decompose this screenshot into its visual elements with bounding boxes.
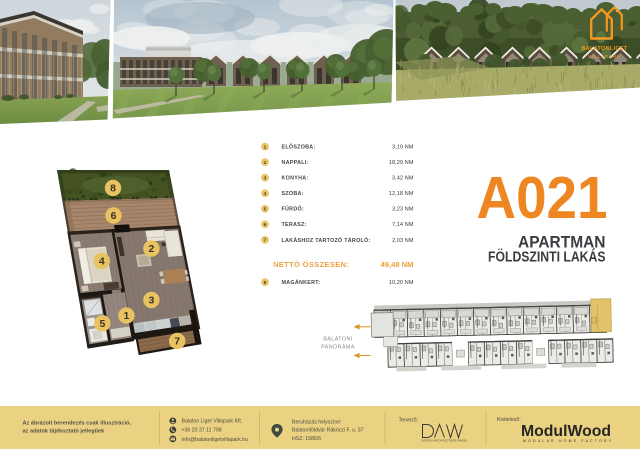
svg-text:az adatok tájékoztató jellegűe: az adatok tájékoztató jellegűek <box>23 428 106 434</box>
svg-text:BALATONI: BALATONI <box>323 337 352 343</box>
svg-text:1: 1 <box>264 144 267 150</box>
svg-text:3: 3 <box>264 176 267 182</box>
svg-text:7,14 NM: 7,14 NM <box>392 222 414 228</box>
svg-text:KONYHA:: KONYHA: <box>282 176 309 182</box>
svg-text:3,42 NM: 3,42 NM <box>392 176 414 182</box>
svg-text:3: 3 <box>148 295 154 307</box>
svg-text:2,03 NM: 2,03 NM <box>392 238 414 244</box>
svg-text:7: 7 <box>174 336 180 348</box>
svg-text:49,48 NM: 49,48 NM <box>381 260 414 269</box>
svg-text:ModulWood: ModulWood <box>521 423 611 440</box>
svg-text:8: 8 <box>110 183 116 195</box>
svg-text:6: 6 <box>111 210 117 222</box>
svg-text:A021: A021 <box>477 165 608 231</box>
svg-text:10,20 NM: 10,20 NM <box>389 280 414 286</box>
svg-text:Beruházás helyszíne:: Beruházás helyszíne: <box>292 419 342 425</box>
svg-text:6: 6 <box>264 222 267 228</box>
svg-text:Az ábrázolt berendezés csak il: Az ábrázolt berendezés csak illusztráció… <box>23 421 132 427</box>
svg-text:2: 2 <box>148 243 154 255</box>
svg-text:DESIGN ARCHITECTURE WHEEL: DESIGN ARCHITECTURE WHEEL <box>422 440 469 443</box>
svg-text:BALATONLIGET: BALATONLIGET <box>582 46 628 52</box>
svg-text:info@balatonligetvillapark.hu: info@balatonligetvillapark.hu <box>182 437 249 443</box>
svg-text:SZOBA:: SZOBA: <box>282 191 304 197</box>
svg-text:VILLAPARK: VILLAPARK <box>588 54 621 59</box>
svg-text:3,19 NM: 3,19 NM <box>392 145 414 151</box>
svg-text:LAKÁSHOZ TARTOZÓ TÁROLÓ:: LAKÁSHOZ TARTOZÓ TÁROLÓ: <box>282 236 371 244</box>
svg-text:HSZ: 1586/5: HSZ: 1586/5 <box>292 436 321 442</box>
svg-text:Balaton Liget Villapark Kft.: Balaton Liget Villapark Kft. <box>182 419 243 425</box>
svg-text:8: 8 <box>264 280 267 286</box>
svg-text:Tervező:: Tervező: <box>399 418 419 424</box>
svg-text:Balatonföldvár Rákóczi F. u. 3: Balatonföldvár Rákóczi F. u. 37 <box>292 428 364 434</box>
svg-text:FÖLDSZINTI LAKÁS: FÖLDSZINTI LAKÁS <box>488 249 606 266</box>
svg-text:4: 4 <box>264 191 267 197</box>
svg-text:4: 4 <box>99 256 105 268</box>
svg-text:FÜRDŐ:: FÜRDŐ: <box>282 206 304 213</box>
svg-text:NAPPALI:: NAPPALI: <box>282 160 309 166</box>
svg-text:2: 2 <box>264 160 267 166</box>
svg-text:18,29 NM: 18,29 NM <box>389 160 414 166</box>
svg-text:Kivitelező:: Kivitelező: <box>497 417 521 423</box>
svg-text:ELŐSZOBA:: ELŐSZOBA: <box>282 144 316 151</box>
svg-text:5: 5 <box>264 207 267 213</box>
svg-text:5: 5 <box>99 318 105 330</box>
svg-text:TERASZ:: TERASZ: <box>282 222 307 228</box>
svg-text:PANORÁMA: PANORÁMA <box>321 343 355 350</box>
svg-text:1: 1 <box>123 310 129 322</box>
svg-text:12,18 NM: 12,18 NM <box>389 191 414 197</box>
svg-text:+36 20 37 11 798: +36 20 37 11 798 <box>182 428 222 434</box>
svg-text:7: 7 <box>264 238 267 244</box>
svg-text:3,23 NM: 3,23 NM <box>392 207 414 213</box>
svg-text:MAGÁNKERT:: MAGÁNKERT: <box>282 279 321 286</box>
svg-text:APARTMAN: APARTMAN <box>518 233 606 251</box>
svg-text:NETTÓ ÖSSZESEN:: NETTÓ ÖSSZESEN: <box>273 260 349 269</box>
